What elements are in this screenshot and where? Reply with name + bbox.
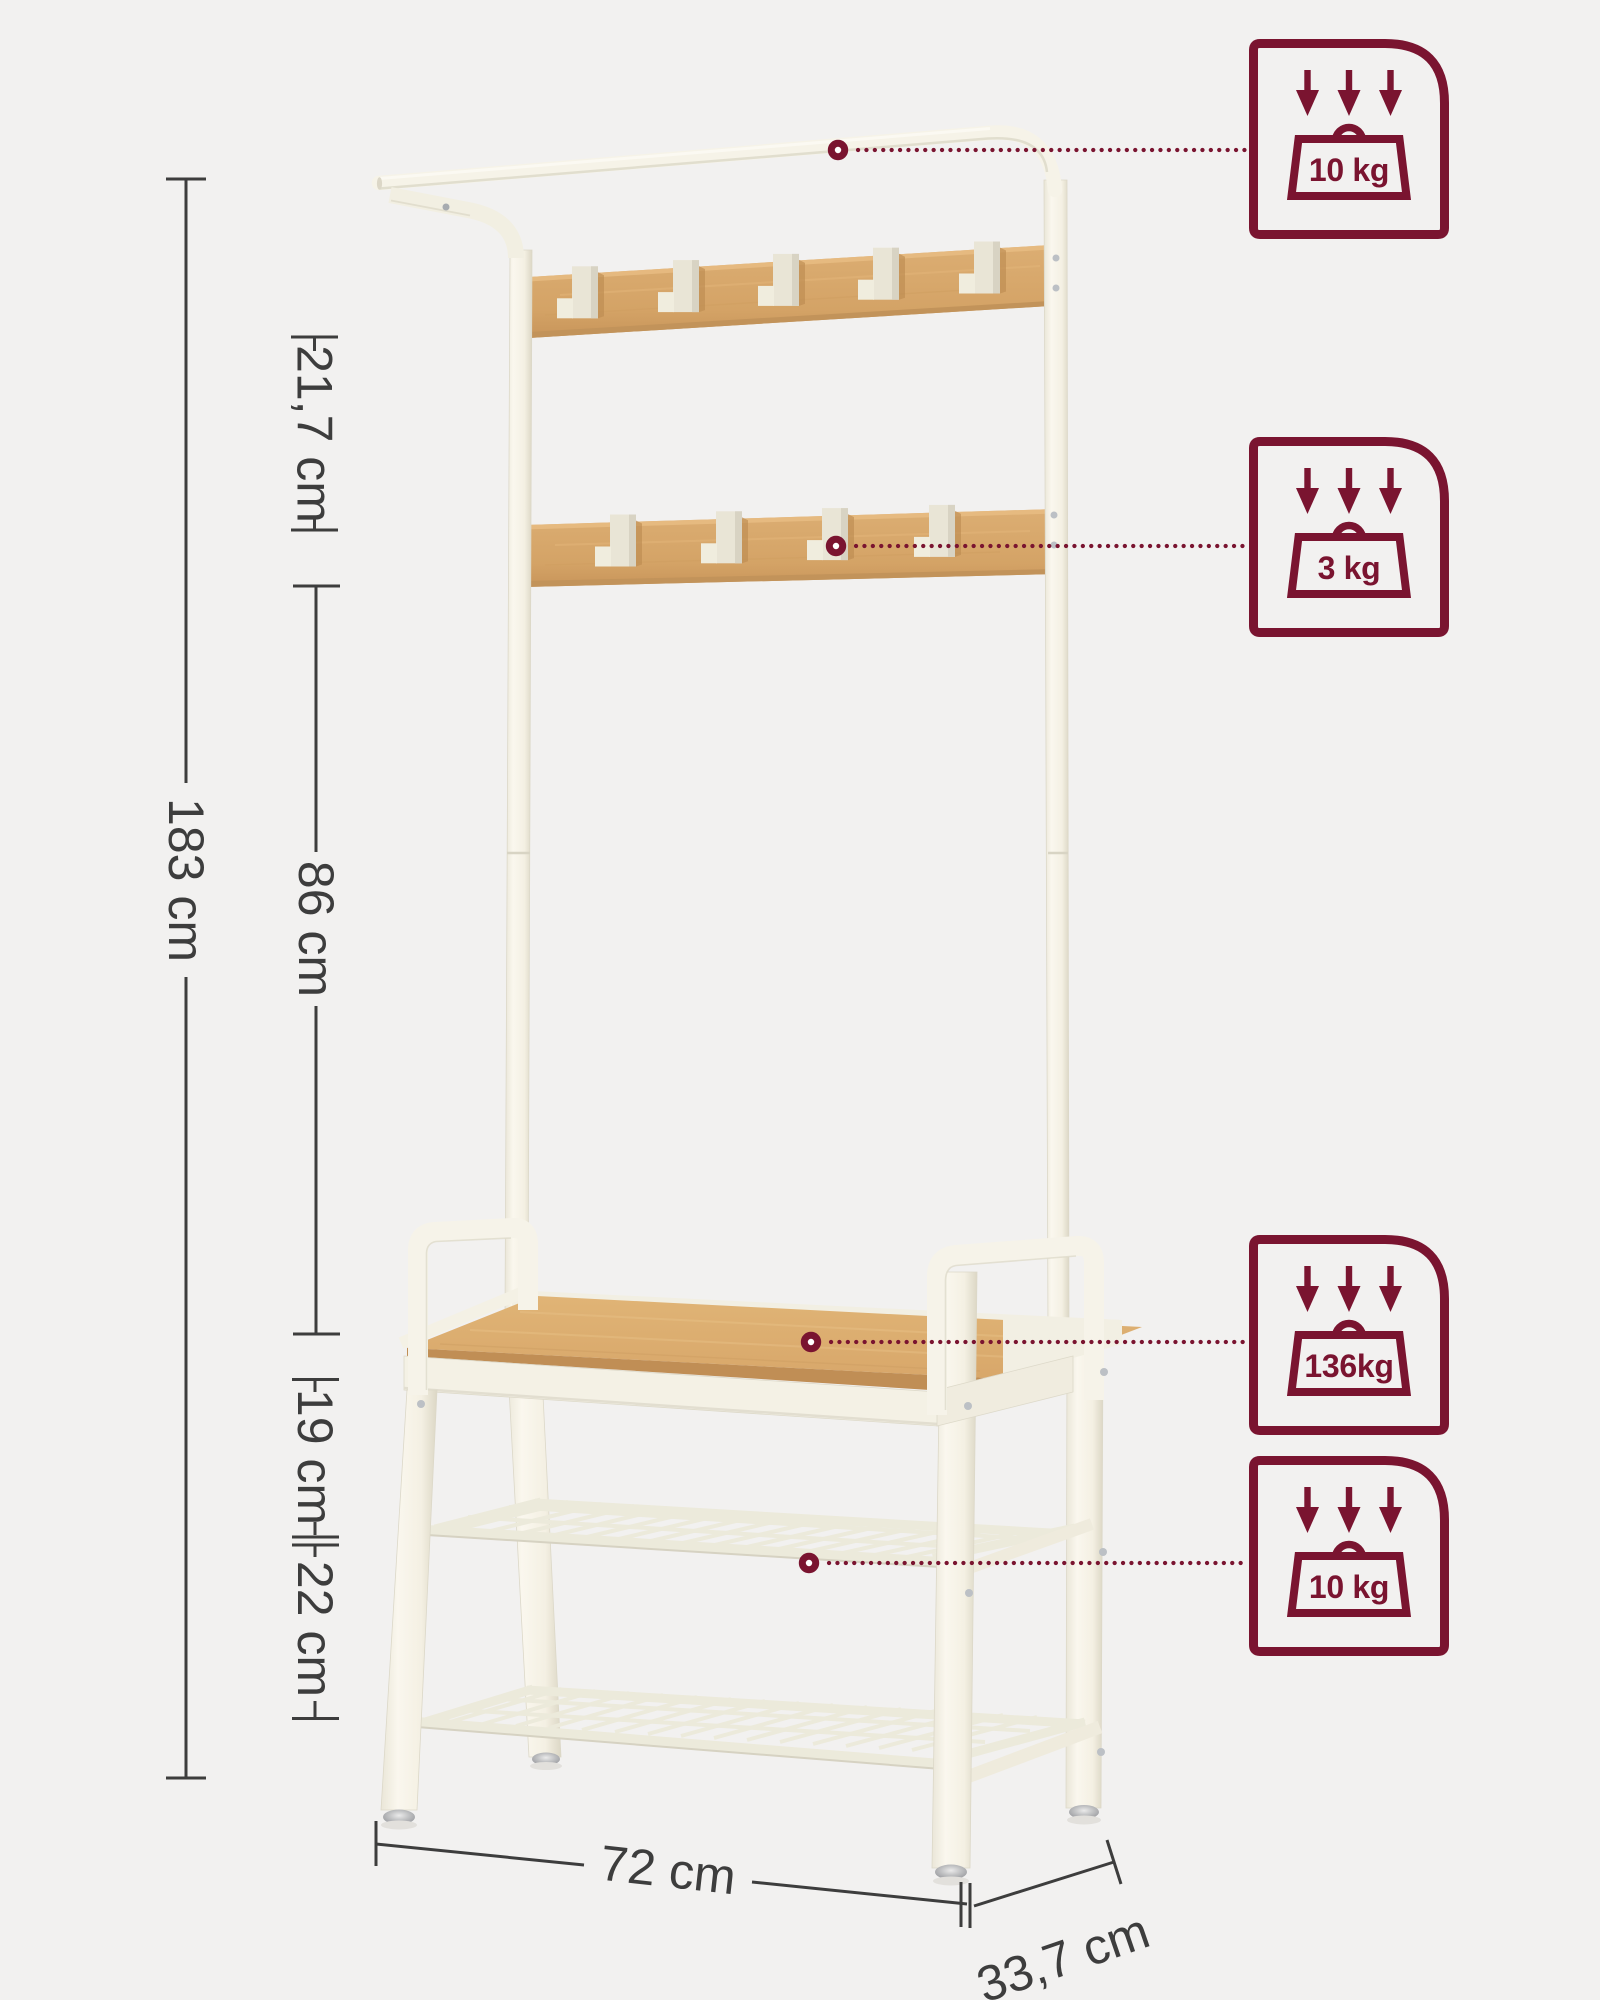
svg-text:86 cm: 86 cm bbox=[288, 861, 344, 997]
svg-text:22 cm: 22 cm bbox=[287, 1561, 343, 1697]
svg-text:10 kg: 10 kg bbox=[1309, 152, 1389, 188]
svg-text:10 kg: 10 kg bbox=[1309, 1569, 1389, 1605]
svg-text:3 kg: 3 kg bbox=[1318, 550, 1381, 586]
svg-text:21,7 cm: 21,7 cm bbox=[287, 345, 343, 523]
svg-text:19 cm: 19 cm bbox=[287, 1389, 343, 1525]
svg-text:183 cm: 183 cm bbox=[158, 798, 214, 962]
svg-text:136kg: 136kg bbox=[1304, 1348, 1393, 1384]
